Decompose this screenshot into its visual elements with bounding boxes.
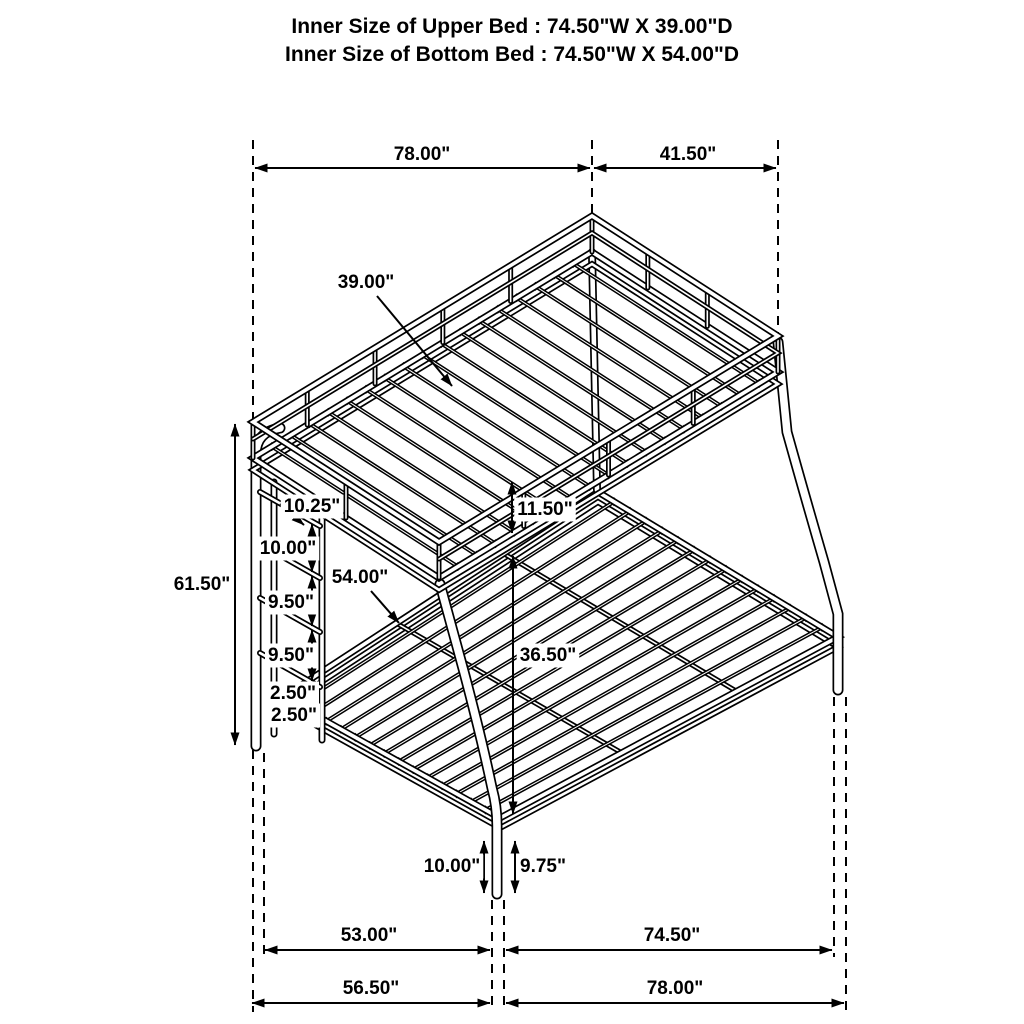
dimension-lower-inner-depth: 54.00" [329, 566, 399, 624]
dimension-ladder-gap-1: 10.00" [257, 524, 320, 572]
dimension-label: 53.00" [341, 925, 398, 946]
dimension-ladder-gap-4: 2.50" [267, 682, 319, 706]
tube-core [778, 342, 838, 690]
dimension-label: 9.50" [268, 592, 314, 613]
diagram-page: Inner Size of Upper Bed : 74.50"W X 39.0… [0, 0, 1024, 1024]
dimension-front-leg-height: 10.00" [421, 841, 484, 893]
upper-bunk [253, 216, 778, 590]
dimension-label: 56.50" [343, 978, 400, 999]
dimension-upper-length: 78.00" [255, 143, 590, 169]
dimension-ladder-gap-5: 2.50" [268, 704, 320, 728]
dimension-upper-depth-overall: 41.50" [594, 143, 776, 169]
dimension-label: 2.50" [270, 683, 316, 704]
bunk-bed-wireframe [253, 216, 838, 894]
dimension-bottom-span-left-outer: 56.50" [252, 977, 490, 1004]
bunk-bed-dimension-drawing: 78.00"41.50"39.00"61.50"10.25"10.00"9.50… [0, 0, 1024, 1024]
dimension-label: 9.50" [268, 645, 314, 666]
dimension-label: 36.50" [520, 645, 577, 666]
dimension-front-leg-inner-height: 9.75" [515, 841, 569, 893]
dimension-label: 10.00" [260, 538, 317, 559]
dimension-label: 39.00" [338, 272, 395, 293]
leader-arrow [371, 591, 399, 623]
dimension-label: 54.00" [332, 567, 389, 588]
dimension-bottom-span-left-inner: 53.00" [265, 924, 490, 951]
dimension-bottom-span-right-inner: 74.50" [506, 924, 832, 951]
dimension-label: 11.50" [517, 499, 573, 520]
dimension-bottom-span-right-outer: 78.00" [506, 977, 844, 1004]
dimension-label: 41.50" [660, 144, 717, 165]
dimension-label: 78.00" [394, 144, 451, 165]
dimension-label: 10.25" [284, 496, 341, 517]
dimension-label: 74.50" [644, 925, 701, 946]
dimension-label: 61.50" [174, 574, 231, 595]
dimension-overall-height: 61.50" [171, 424, 235, 745]
guard-top-rail [253, 216, 778, 542]
dimension-label: 78.00" [647, 978, 704, 999]
dimension-label: 10.00" [424, 856, 481, 877]
upper-frame-under-rail [253, 264, 778, 590]
dimension-label: 2.50" [271, 705, 317, 726]
tube-core [428, 589, 758, 778]
dimension-label: 9.75" [520, 856, 566, 877]
